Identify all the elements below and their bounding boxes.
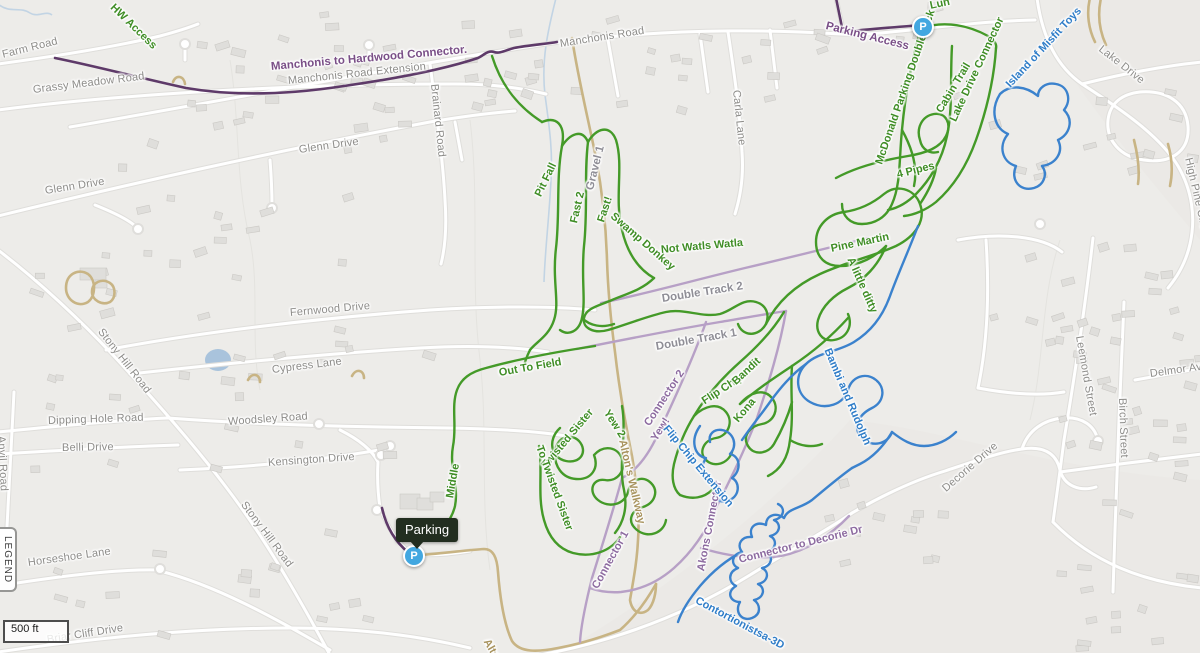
map-canvas[interactable]: Old Farm RoadGrassy Meadow RoadManchonis…	[0, 0, 1200, 653]
basemap-layer	[0, 0, 1200, 653]
large-buildings	[80, 268, 444, 510]
scale-control: 500 ft	[3, 620, 69, 643]
parking-marker-north[interactable]: P	[912, 16, 934, 38]
legend-tab[interactable]: LEGEND	[0, 527, 17, 592]
parking-tooltip: Parking	[396, 518, 458, 542]
